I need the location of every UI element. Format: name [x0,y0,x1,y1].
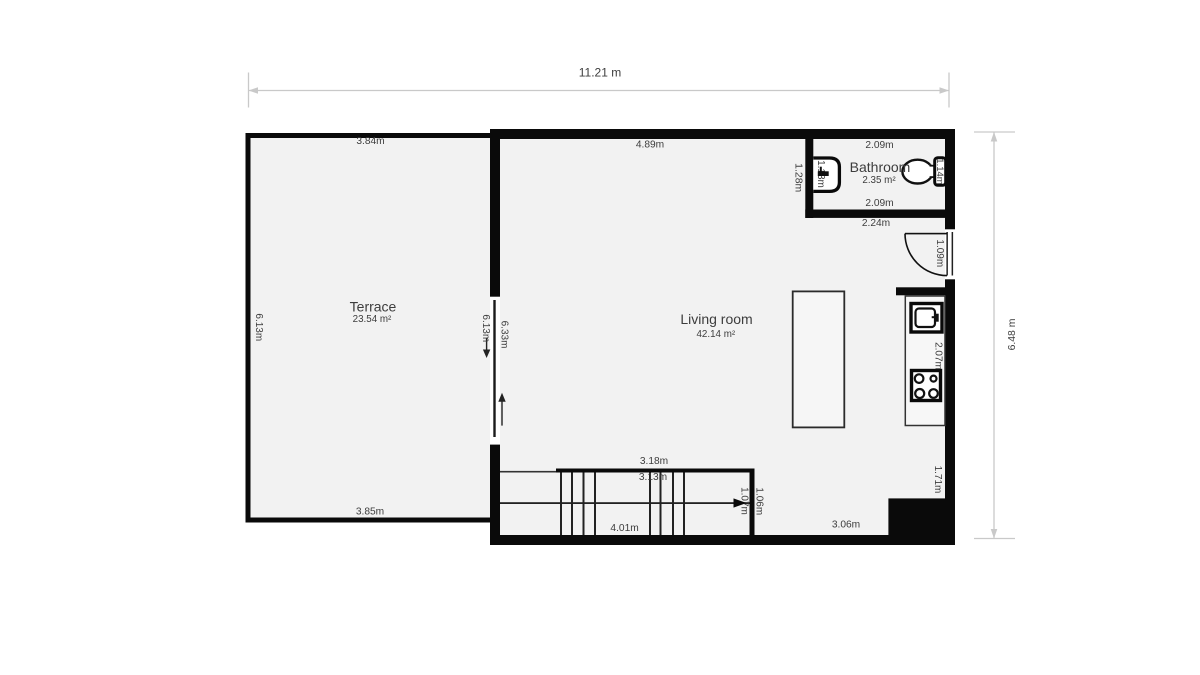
svg-text:3.06m: 3.06m [832,520,860,531]
svg-text:2.09m: 2.09m [865,140,893,151]
svg-text:Bathroom: Bathroom [850,159,911,175]
svg-text:3.13m: 3.13m [639,472,667,483]
svg-text:3.85m: 3.85m [356,507,384,518]
svg-text:6.33m: 6.33m [498,321,509,349]
svg-text:Terrace: Terrace [350,299,397,315]
svg-text:1.09m: 1.09m [934,239,945,267]
svg-text:1.71m: 1.71m [932,466,943,494]
svg-text:4.89m: 4.89m [636,140,664,151]
svg-text:42.14 m²: 42.14 m² [696,329,735,340]
svg-text:Living room: Living room [680,311,752,327]
svg-text:3.84m: 3.84m [356,136,384,147]
svg-text:3.18m: 3.18m [640,456,668,467]
svg-text:2.07m: 2.07m [933,342,944,370]
svg-text:6.13m: 6.13m [480,314,491,342]
svg-text:2.35 m²: 2.35 m² [862,175,896,186]
svg-text:6.48 m: 6.48 m [1007,319,1018,351]
svg-text:6.13m: 6.13m [253,313,264,341]
svg-text:23.54 m²: 23.54 m² [353,314,392,325]
svg-text:11.21 m: 11.21 m [579,66,621,80]
svg-text:2.24m: 2.24m [862,218,890,229]
svg-text:2.09m: 2.09m [865,198,893,209]
svg-text:1.06m: 1.06m [754,487,765,515]
svg-text:4.01m: 4.01m [610,523,638,534]
svg-text:1.28m: 1.28m [793,163,805,192]
svg-text:1.14m: 1.14m [934,158,945,184]
